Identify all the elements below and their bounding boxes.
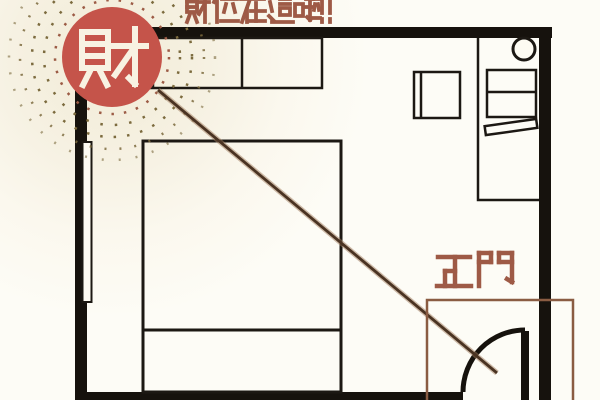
- banner-char-2: [214, 0, 238, 22]
- banner-char-3: [241, 0, 265, 22]
- banner-char-1: [187, 0, 209, 22]
- desk: [487, 70, 536, 117]
- door-swing-arc: [463, 330, 525, 392]
- bed: [143, 141, 341, 392]
- keyboard: [485, 119, 538, 135]
- banner-char-4: [269, 0, 293, 22]
- wealth-badge-circle: [62, 7, 162, 107]
- wall-right: [539, 27, 551, 400]
- door-label-strokes: [437, 253, 512, 286]
- desk-chair: [414, 72, 460, 118]
- stool: [513, 38, 535, 60]
- fengshui-floorplan-diagram: 財位在這啦!! 財 正門: [0, 0, 600, 400]
- door-label-char-2: [479, 253, 512, 286]
- banner-strokes: [187, 0, 330, 22]
- door-label-char-1: [437, 257, 471, 286]
- banner-char-5: [295, 0, 320, 20]
- floorplan-canvas: [0, 0, 600, 400]
- door-leaf: [521, 331, 529, 400]
- banner-exclamations: [322, 0, 330, 22]
- door-highlight-box: [427, 300, 573, 400]
- window: [83, 142, 92, 302]
- wealth-badge: [62, 7, 162, 107]
